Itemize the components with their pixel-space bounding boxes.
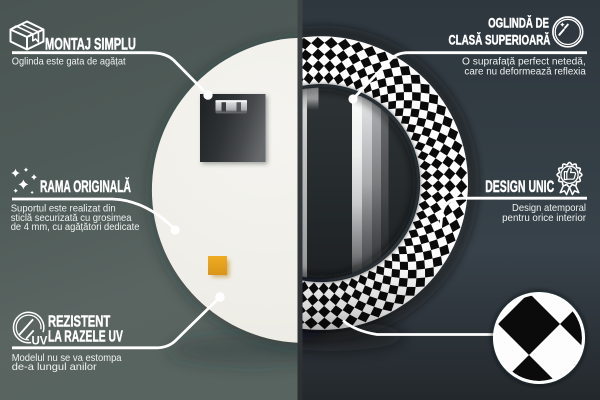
- svg-text:de-a lungul anilor: de-a lungul anilor: [12, 362, 98, 373]
- svg-text:Oglinda este gata de agățat: Oglinda este gata de agățat: [12, 56, 126, 67]
- svg-text:MONTAJ SIMPLU: MONTAJ SIMPLU: [45, 35, 136, 54]
- svg-text:RAMA ORIGINALĂ: RAMA ORIGINALĂ: [40, 176, 131, 195]
- svg-text:UV: UV: [32, 336, 48, 348]
- svg-text:pentru orice interior: pentru orice interior: [502, 213, 587, 224]
- svg-text:CLASĂ SUPERIOARĂ: CLASĂ SUPERIOARĂ: [449, 31, 551, 48]
- svg-text:de 4 mm, cu agățători dedicate: de 4 mm, cu agățători dedicate: [11, 222, 140, 233]
- svg-text:DESIGN UNIC: DESIGN UNIC: [485, 177, 554, 196]
- svg-text:OGLINDĂ DE: OGLINDĂ DE: [488, 14, 549, 31]
- svg-text:care nu deformează reflexia: care nu deformează reflexia: [464, 66, 586, 77]
- svg-text:LA RAZELE UV: LA RAZELE UV: [48, 327, 123, 345]
